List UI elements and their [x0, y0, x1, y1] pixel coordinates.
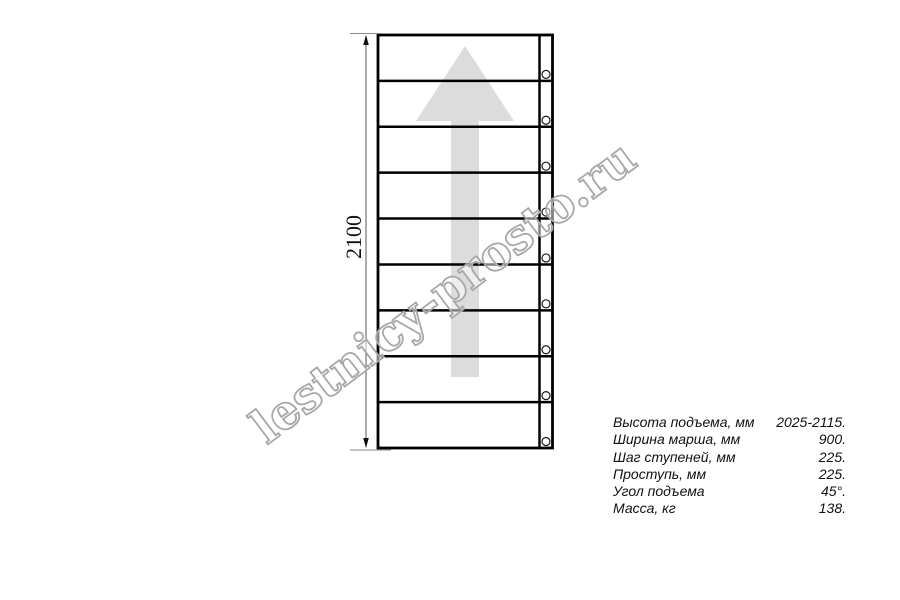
- page: 2100 lestnicy-prosto.ru Высота подъема, …: [0, 0, 900, 600]
- specs-table: Высота подъема, мм 2025-2115. Ширина мар…: [613, 414, 846, 518]
- dimension-arrowhead-bottom: [363, 438, 369, 448]
- bolt-circle: [542, 392, 550, 400]
- spec-label: Масса, кг: [613, 500, 676, 517]
- spec-value: 138.: [819, 500, 846, 517]
- bolt-circle: [542, 254, 550, 262]
- spec-value: 225.: [819, 466, 846, 483]
- spec-value: 2025-2115.: [776, 414, 846, 431]
- bolt-circle: [542, 300, 550, 308]
- dimension-label: 2100: [341, 215, 366, 259]
- spec-row: Проступь, мм 225.: [613, 466, 846, 483]
- spec-row: Шаг ступеней, мм 225.: [613, 449, 846, 466]
- spec-value: 45°.: [821, 483, 846, 500]
- bolt-circle: [542, 116, 550, 124]
- spec-value: 225.: [819, 449, 846, 466]
- bolt-circle: [542, 346, 550, 354]
- spec-label: Высота подъема, мм: [613, 414, 755, 431]
- bolt-circle: [542, 438, 550, 446]
- spec-label: Угол подъема: [613, 483, 705, 500]
- spec-label: Ширина марша, мм: [613, 431, 740, 448]
- dimension-arrowhead-top: [363, 35, 369, 45]
- watermark: lestnicy-prosto.ru: [241, 130, 647, 455]
- spec-value: 900.: [819, 431, 846, 448]
- spec-label: Проступь, мм: [613, 466, 706, 483]
- spec-row: Угол подъема 45°.: [613, 483, 846, 500]
- spec-row: Ширина марша, мм 900.: [613, 431, 846, 448]
- spec-row: Высота подъема, мм 2025-2115.: [613, 414, 846, 431]
- spec-row: Масса, кг 138.: [613, 500, 846, 517]
- bolt-circle: [542, 70, 550, 78]
- bolt-circle: [542, 162, 550, 170]
- spec-label: Шаг ступеней, мм: [613, 449, 736, 466]
